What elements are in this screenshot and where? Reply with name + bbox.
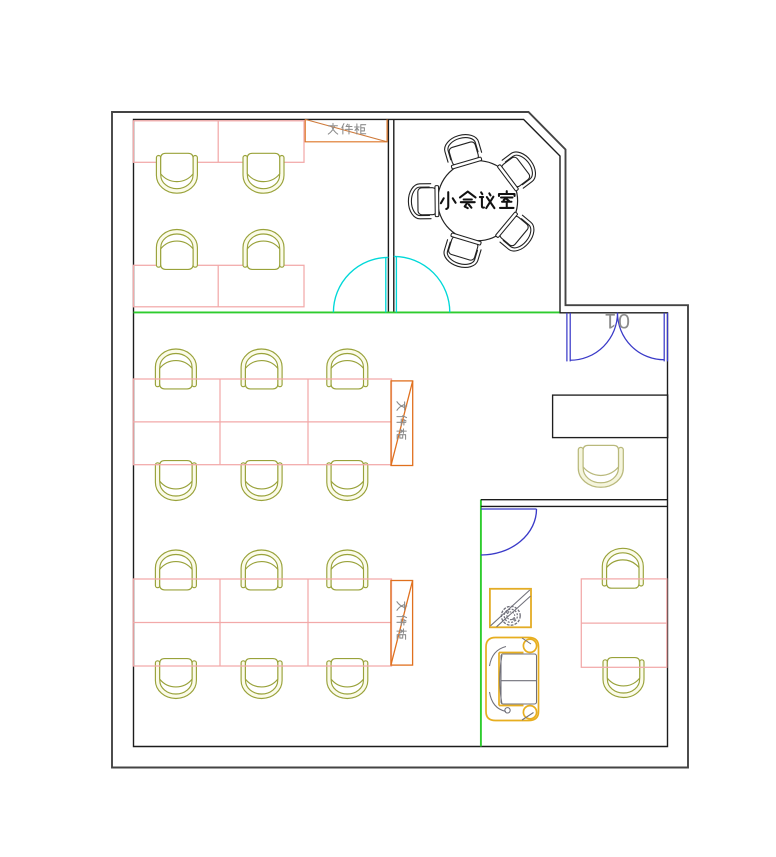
svg-text:01: 01 bbox=[603, 309, 630, 333]
